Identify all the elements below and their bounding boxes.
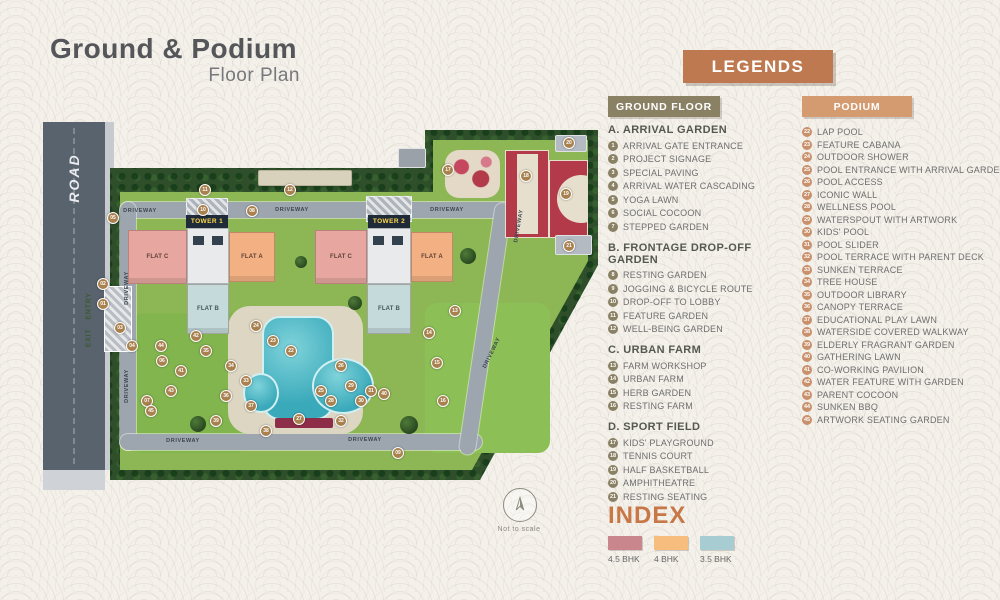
title-block: Ground & Podium Floor Plan bbox=[50, 34, 300, 87]
legend-item: 22LAP POOL bbox=[802, 126, 998, 139]
clubhouse-building bbox=[398, 148, 426, 168]
legend-section-heading: A. ARRIVAL GARDEN bbox=[608, 124, 798, 136]
legend-item-number-badge: 15 bbox=[608, 388, 618, 398]
legend-item: 25POOL ENTRANCE WITH ARRIVAL GARDEN bbox=[802, 164, 998, 177]
legend-item-number-badge: 22 bbox=[802, 127, 812, 137]
legend-item-number-badge: 30 bbox=[802, 227, 812, 237]
map-number-marker: 16 bbox=[437, 395, 449, 407]
map-number-marker: 25 bbox=[315, 385, 327, 397]
legend-item: 29WATERSPOUT WITH ARTWORK bbox=[802, 214, 998, 227]
legend-item: 26POOL ACCESS bbox=[802, 176, 998, 189]
map-number-marker: 35 bbox=[200, 345, 212, 357]
legend-item: 9JOGGING & BICYCLE ROUTE bbox=[608, 282, 798, 296]
legend-item-label: PROJECT SIGNAGE bbox=[623, 154, 711, 164]
legend-item-number-badge: 6 bbox=[608, 208, 618, 218]
legend-item-number-badge: 36 bbox=[802, 302, 812, 312]
legend-item-number-badge: 11 bbox=[608, 311, 618, 321]
legend-item: 42WATER FEATURE WITH GARDEN bbox=[802, 376, 998, 389]
legend-item-number-badge: 24 bbox=[802, 152, 812, 162]
map-number-marker: 23 bbox=[267, 335, 279, 347]
legend-item-number-badge: 3 bbox=[608, 168, 618, 178]
map-number-marker: 32 bbox=[335, 415, 347, 427]
legend-item-label: CO-WORKING PAVILION bbox=[817, 365, 924, 375]
legend-item-number-badge: 20 bbox=[608, 478, 618, 488]
map-number-marker: 34 bbox=[225, 360, 237, 372]
driveway-label: DRIVEWAY bbox=[124, 369, 130, 403]
index-item: 4 BHK bbox=[654, 536, 688, 564]
legend-item-label: OUTDOOR LIBRARY bbox=[817, 290, 907, 300]
legend-item: 31POOL SLIDER bbox=[802, 239, 998, 252]
map-number-marker: 44 bbox=[155, 340, 167, 352]
legend-item-label: DROP-OFF TO LOBBY bbox=[623, 297, 721, 307]
page-subtitle: Floor Plan bbox=[50, 65, 300, 87]
tree-icon bbox=[348, 296, 362, 310]
map-number-marker: 14 bbox=[423, 327, 435, 339]
legend-item-label: WATER FEATURE WITH GARDEN bbox=[817, 377, 964, 387]
legend-item: 44SUNKEN BBQ bbox=[802, 401, 998, 414]
legend-item: 3SPECIAL PAVING bbox=[608, 166, 798, 180]
legend-item-label: EDUCATIONAL PLAY LAWN bbox=[817, 315, 937, 325]
legend-item: 6SOCIAL COCOON bbox=[608, 207, 798, 221]
legend-item-label: FEATURE CABANA bbox=[817, 140, 901, 150]
legend-item: 35OUTDOOR LIBRARY bbox=[802, 289, 998, 302]
legend-item-number-badge: 44 bbox=[802, 402, 812, 412]
legend-item-number-badge: 1 bbox=[608, 141, 618, 151]
legend-item-number-badge: 43 bbox=[802, 390, 812, 400]
legend-item-number-badge: 19 bbox=[608, 465, 618, 475]
map-number-marker: 41 bbox=[175, 365, 187, 377]
legend-item-label: JOGGING & BICYCLE ROUTE bbox=[623, 284, 753, 294]
legend-item-label: WELLNESS POOL bbox=[817, 202, 896, 212]
legend-item: 2PROJECT SIGNAGE bbox=[608, 153, 798, 167]
legend-item: 40GATHERING LAWN bbox=[802, 351, 998, 364]
map-number-marker: 08 bbox=[246, 205, 258, 217]
map-number-marker: 26 bbox=[335, 360, 347, 372]
map-number-marker: 36 bbox=[220, 390, 232, 402]
legend-item-label: RESTING SEATING bbox=[623, 492, 707, 502]
legend-item-label: ARTWORK SEATING GARDEN bbox=[817, 415, 950, 425]
legend-item: 13FARM WORKSHOP bbox=[608, 359, 798, 373]
map-number-marker: 45 bbox=[145, 405, 157, 417]
legend-item-label: STEPPED GARDEN bbox=[623, 222, 709, 232]
legend-item: 24OUTDOOR SHOWER bbox=[802, 151, 998, 164]
driveway-label: DRIVEWAY bbox=[124, 271, 130, 305]
legend-item-label: TREE HOUSE bbox=[817, 277, 878, 287]
index-color-swatch bbox=[700, 536, 734, 550]
legend-item-label: FEATURE GARDEN bbox=[623, 311, 708, 321]
legend-item-label: ELDERLY FRAGRANT GARDEN bbox=[817, 340, 955, 350]
driveway-label: DRIVEWAY bbox=[430, 207, 464, 213]
legend-item: 17KIDS' PLAYGROUND bbox=[608, 436, 798, 450]
legend-item-number-badge: 37 bbox=[802, 315, 812, 325]
index-color-swatch bbox=[654, 536, 688, 550]
legend-item: 27ICONIC WALL bbox=[802, 189, 998, 202]
legend-section: C. URBAN FARM13FARM WORKSHOP14URBAN FARM… bbox=[608, 344, 798, 413]
legend-item-number-badge: 31 bbox=[802, 240, 812, 250]
legend-item-label: SUNKEN BBQ bbox=[817, 402, 878, 412]
legend-item-number-badge: 27 bbox=[802, 190, 812, 200]
map-number-marker: 04 bbox=[126, 340, 138, 352]
legend-item-number-badge: 17 bbox=[608, 438, 618, 448]
legend-item: 19HALF BASKETBALL bbox=[608, 463, 798, 477]
legend-item-number-badge: 32 bbox=[802, 252, 812, 262]
map-number-marker: 13 bbox=[449, 305, 461, 317]
driveway-label: DRIVEWAY bbox=[166, 438, 200, 444]
legend-section: B. FRONTAGE DROP-OFF GARDEN8RESTING GARD… bbox=[608, 242, 798, 337]
map-number-marker: 10 bbox=[197, 204, 209, 216]
legend-item: 36CANOPY TERRACE bbox=[802, 301, 998, 314]
map-number-marker: 15 bbox=[431, 357, 443, 369]
legend-item-label: AMPHITHEATRE bbox=[623, 478, 695, 488]
map-number-marker: 22 bbox=[285, 345, 297, 357]
podium-header: PODIUM bbox=[802, 96, 912, 117]
legend-item-number-badge: 4 bbox=[608, 181, 618, 191]
tower2-label: TOWER 2 bbox=[368, 215, 410, 228]
legend-item-label: HERB GARDEN bbox=[623, 388, 691, 398]
legend-section-heading: D. SPORT FIELD bbox=[608, 421, 798, 433]
legend-item-label: ARRIVAL WATER CASCADING bbox=[623, 181, 755, 191]
compass-icon bbox=[503, 488, 537, 522]
legend-item-number-badge: 21 bbox=[608, 492, 618, 502]
legend-item-number-badge: 8 bbox=[608, 270, 618, 280]
legend-item-number-badge: 26 bbox=[802, 177, 812, 187]
legend-item: 20AMPHITHEATRE bbox=[608, 477, 798, 491]
map-number-marker: 31 bbox=[365, 385, 377, 397]
tree-icon bbox=[190, 416, 206, 432]
map-number-marker: 40 bbox=[378, 388, 390, 400]
legend-item: 37EDUCATIONAL PLAY LAWN bbox=[802, 314, 998, 327]
legend-item: 11FEATURE GARDEN bbox=[608, 309, 798, 323]
kids-playground bbox=[445, 150, 500, 198]
map-number-marker: 27 bbox=[293, 413, 305, 425]
map-number-marker: 39 bbox=[210, 415, 222, 427]
legend-item-label: WATERSPOUT WITH ARTWORK bbox=[817, 215, 957, 225]
north-arrow-icon bbox=[510, 495, 530, 515]
legend-item-number-badge: 9 bbox=[608, 284, 618, 294]
legend-item-label: YOGA LAWN bbox=[623, 195, 678, 205]
index-item: 3.5 BHK bbox=[700, 536, 734, 564]
legend-item: 15HERB GARDEN bbox=[608, 386, 798, 400]
driveway-label: DRIVEWAY bbox=[275, 207, 309, 213]
tower1-core bbox=[187, 228, 229, 284]
map-number-marker: 24 bbox=[250, 320, 262, 332]
legend-item: 1ARRIVAL GATE ENTRANCE bbox=[608, 139, 798, 153]
legend-item: 18TENNIS COURT bbox=[608, 450, 798, 464]
legend-item: 34TREE HOUSE bbox=[802, 276, 998, 289]
legend-item: 39ELDERLY FRAGRANT GARDEN bbox=[802, 339, 998, 352]
legend-item-number-badge: 33 bbox=[802, 265, 812, 275]
legend-item-label: CANOPY TERRACE bbox=[817, 302, 903, 312]
legend-item-number-badge: 7 bbox=[608, 222, 618, 232]
legend-item: 38WATERSIDE COVERED WALKWAY bbox=[802, 326, 998, 339]
floor-plan-page: Ground & Podium Floor Plan ROAD ENTRY EX… bbox=[0, 0, 1000, 600]
pergola-walkway bbox=[258, 170, 352, 186]
map-number-marker: 38 bbox=[260, 425, 272, 437]
tower2-flat-b: FLAT B bbox=[367, 284, 411, 334]
tree-icon bbox=[295, 256, 307, 268]
site-plan-map: ROAD ENTRY EXIT bbox=[40, 118, 600, 492]
legend-item-label: KIDS' POOL bbox=[817, 227, 869, 237]
map-number-marker: 18 bbox=[520, 170, 532, 182]
legend-item-label: ICONIC WALL bbox=[817, 190, 877, 200]
road-label: ROAD bbox=[66, 150, 82, 206]
tower1-flat-b: FLAT B bbox=[187, 284, 229, 334]
tower1-flat-c: FLAT C bbox=[128, 230, 187, 284]
legend-item-label: POOL ACCESS bbox=[817, 177, 883, 187]
podium-legend-list: 22LAP POOL23FEATURE CABANA24OUTDOOR SHOW… bbox=[802, 126, 998, 426]
legend-item-label: WELL-BEING GARDEN bbox=[623, 324, 723, 334]
legend-item-label: RESTING FARM bbox=[623, 401, 693, 411]
legend-item: 10DROP-OFF TO LOBBY bbox=[608, 296, 798, 310]
map-number-marker: 01 bbox=[97, 298, 109, 310]
driveway-label: DRIVEWAY bbox=[348, 437, 382, 443]
legend-item-number-badge: 35 bbox=[802, 290, 812, 300]
legend-item-number-badge: 29 bbox=[802, 215, 812, 225]
legend-item-number-badge: 38 bbox=[802, 327, 812, 337]
map-number-marker: 05 bbox=[107, 212, 119, 224]
legend-item: 43PARENT COCOON bbox=[802, 389, 998, 402]
legend-item: 5YOGA LAWN bbox=[608, 193, 798, 207]
map-number-marker: 03 bbox=[114, 322, 126, 334]
tower2-flat-a: FLAT A bbox=[411, 232, 453, 282]
legend-item: 23FEATURE CABANA bbox=[802, 139, 998, 152]
tree-icon bbox=[400, 416, 418, 434]
legend-item-label: SUNKEN TERRACE bbox=[817, 265, 903, 275]
legend-item-number-badge: 41 bbox=[802, 365, 812, 375]
legend-item-label: SPECIAL PAVING bbox=[623, 168, 699, 178]
legend-item-number-badge: 13 bbox=[608, 361, 618, 371]
legend-item-number-badge: 23 bbox=[802, 140, 812, 150]
legend-item-label: LAP POOL bbox=[817, 127, 863, 137]
legend-item-label: POOL ENTRANCE WITH ARRIVAL GARDEN bbox=[817, 165, 1000, 175]
index-title: INDEX bbox=[608, 502, 686, 530]
map-number-marker: 33 bbox=[240, 375, 252, 387]
entry-label: ENTRY bbox=[86, 292, 93, 319]
legend-section-heading: C. URBAN FARM bbox=[608, 344, 798, 356]
driveway-label: DRIVEWAY bbox=[123, 208, 157, 214]
legend-item: 8RESTING GARDEN bbox=[608, 269, 798, 283]
legend-item-label: OUTDOOR SHOWER bbox=[817, 152, 909, 162]
map-number-marker: 17 bbox=[442, 164, 454, 176]
legend-item-number-badge: 10 bbox=[608, 297, 618, 307]
legend-item-label: TENNIS COURT bbox=[623, 451, 693, 461]
map-number-marker: 37 bbox=[245, 400, 257, 412]
index-item-label: 4 BHK bbox=[654, 554, 688, 564]
map-number-marker: 09 bbox=[392, 447, 404, 459]
legend-item: 45ARTWORK SEATING GARDEN bbox=[802, 414, 998, 427]
legend-item-label: FARM WORKSHOP bbox=[623, 361, 707, 371]
tree-icon bbox=[460, 248, 476, 264]
map-number-marker: 12 bbox=[284, 184, 296, 196]
legend-item-number-badge: 34 bbox=[802, 277, 812, 287]
not-to-scale-label: Not to scale bbox=[487, 526, 551, 533]
legend-item: 4ARRIVAL WATER CASCADING bbox=[608, 180, 798, 194]
index-color-swatch bbox=[608, 536, 642, 550]
tower2-flat-c: FLAT C bbox=[315, 230, 367, 284]
map-number-marker: 30 bbox=[355, 395, 367, 407]
legend-section-heading: B. FRONTAGE DROP-OFF GARDEN bbox=[608, 242, 798, 266]
legend-item-label: GATHERING LAWN bbox=[817, 352, 901, 362]
ground-floor-header: GROUND FLOOR bbox=[608, 96, 720, 117]
legend-item-number-badge: 25 bbox=[802, 165, 812, 175]
legend-item-number-badge: 12 bbox=[608, 324, 618, 334]
legend-item-number-badge: 39 bbox=[802, 340, 812, 350]
legend-item: 7STEPPED GARDEN bbox=[608, 220, 798, 234]
tower1-flat-a: FLAT A bbox=[229, 232, 275, 282]
map-number-marker: 19 bbox=[560, 188, 572, 200]
legend-item-label: WATERSIDE COVERED WALKWAY bbox=[817, 327, 969, 337]
legend-item-label: HALF BASKETBALL bbox=[623, 465, 709, 475]
map-number-marker: 28 bbox=[325, 395, 337, 407]
legend-item: 12WELL-BEING GARDEN bbox=[608, 323, 798, 337]
legend-item-number-badge: 40 bbox=[802, 352, 812, 362]
legend-item-number-badge: 14 bbox=[608, 374, 618, 384]
map-number-marker: 06 bbox=[156, 355, 168, 367]
legend-item: 16RESTING FARM bbox=[608, 400, 798, 414]
legend-section: A. ARRIVAL GARDEN1ARRIVAL GATE ENTRANCE2… bbox=[608, 124, 798, 234]
legend-item: 14URBAN FARM bbox=[608, 373, 798, 387]
index-item-label: 4.5 BHK bbox=[608, 554, 642, 564]
map-number-marker: 02 bbox=[97, 278, 109, 290]
legend-item: 28WELLNESS POOL bbox=[802, 201, 998, 214]
map-number-marker: 42 bbox=[190, 330, 202, 342]
legend-item-label: POOL SLIDER bbox=[817, 240, 879, 250]
legend-item-number-badge: 18 bbox=[608, 451, 618, 461]
legends-header: LEGENDS bbox=[683, 50, 833, 83]
legend-item: 32POOL TERRACE WITH PARENT DECK bbox=[802, 251, 998, 264]
legend-item-label: KIDS' PLAYGROUND bbox=[623, 438, 714, 448]
index-swatches: 4.5 BHK4 BHK3.5 BHK bbox=[608, 536, 734, 564]
legend-section: D. SPORT FIELD17KIDS' PLAYGROUND18TENNIS… bbox=[608, 421, 798, 504]
tower2-core bbox=[367, 228, 411, 284]
map-number-marker: 21 bbox=[563, 240, 575, 252]
legend-item-number-badge: 42 bbox=[802, 377, 812, 387]
index-item: 4.5 BHK bbox=[608, 536, 642, 564]
index-item-label: 3.5 BHK bbox=[700, 554, 734, 564]
legend-item-number-badge: 2 bbox=[608, 154, 618, 164]
map-number-marker: 20 bbox=[563, 137, 575, 149]
tennis-court bbox=[505, 150, 549, 238]
legend-item-label: POOL TERRACE WITH PARENT DECK bbox=[817, 252, 984, 262]
legend-item-label: URBAN FARM bbox=[623, 374, 684, 384]
exit-label: EXIT bbox=[86, 329, 93, 348]
map-number-marker: 29 bbox=[345, 380, 357, 392]
legend-item-label: ARRIVAL GATE ENTRANCE bbox=[623, 141, 743, 151]
legend-item-number-badge: 45 bbox=[802, 415, 812, 425]
legend-item-label: SOCIAL COCOON bbox=[623, 208, 701, 218]
legend-item: 41CO-WORKING PAVILION bbox=[802, 364, 998, 377]
legend-item-label: PARENT COCOON bbox=[817, 390, 898, 400]
legend-item-label: RESTING GARDEN bbox=[623, 270, 707, 280]
tower1-label: TOWER 1 bbox=[186, 215, 228, 228]
legend-item: 30KIDS' POOL bbox=[802, 226, 998, 239]
legend-item-number-badge: 16 bbox=[608, 401, 618, 411]
map-number-marker: 11 bbox=[199, 184, 211, 196]
legend-item-number-badge: 28 bbox=[802, 202, 812, 212]
ground-floor-legend-list: A. ARRIVAL GARDEN1ARRIVAL GATE ENTRANCE2… bbox=[608, 124, 798, 512]
map-number-marker: 43 bbox=[165, 385, 177, 397]
page-title: Ground & Podium bbox=[50, 34, 300, 63]
road-apron bbox=[43, 470, 105, 490]
legend-item: 33SUNKEN TERRACE bbox=[802, 264, 998, 277]
legend-item-number-badge: 5 bbox=[608, 195, 618, 205]
